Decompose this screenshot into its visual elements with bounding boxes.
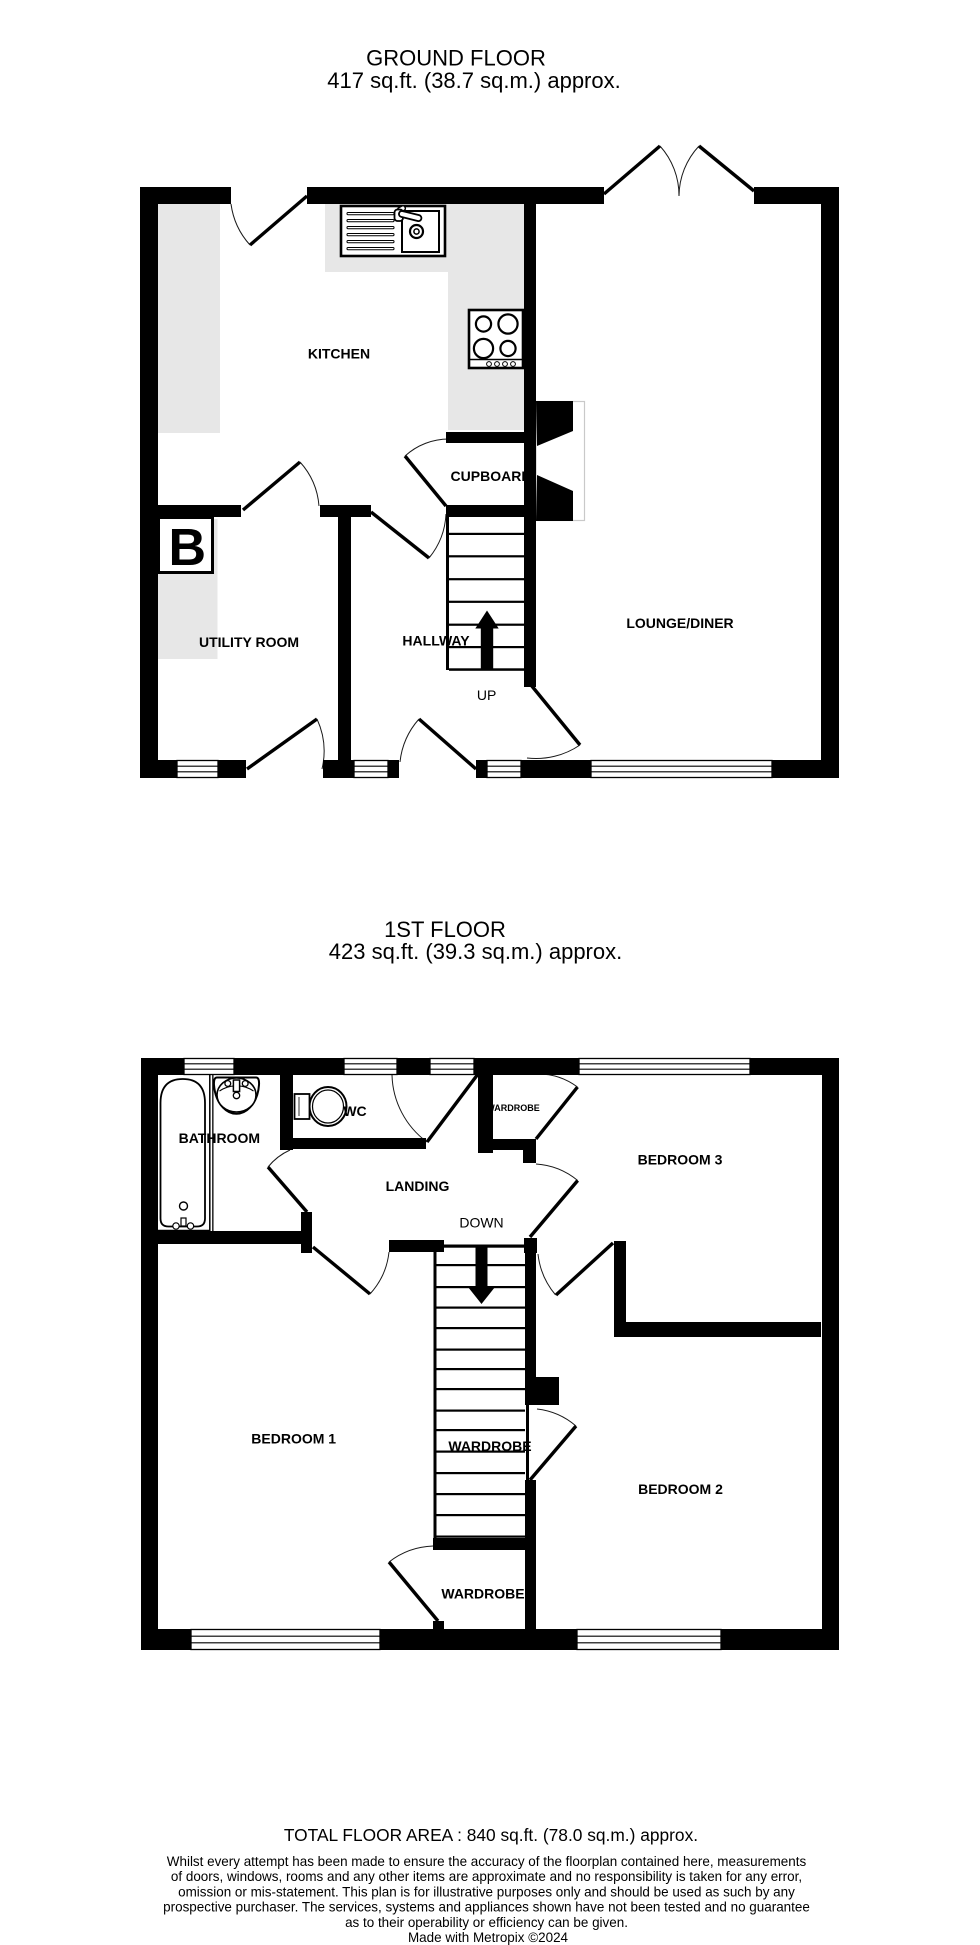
svg-text:UTILITY ROOM: UTILITY ROOM xyxy=(199,634,299,650)
svg-text:of doors, windows, rooms and a: of doors, windows, rooms and any other i… xyxy=(171,1869,802,1884)
svg-text:Made with Metropix ©2024: Made with Metropix ©2024 xyxy=(408,1930,569,1945)
svg-text:Whilst every attempt has been: Whilst every attempt has been made to en… xyxy=(167,1854,807,1869)
svg-text:as to their operability or eff: as to their operability or efficiency ca… xyxy=(345,1915,628,1930)
svg-text:LANDING: LANDING xyxy=(386,1178,450,1194)
svg-text:B: B xyxy=(169,519,207,577)
svg-text:DOWN: DOWN xyxy=(459,1215,503,1231)
svg-text:CUPBOARD: CUPBOARD xyxy=(451,468,532,484)
svg-text:BEDROOM 3: BEDROOM 3 xyxy=(638,1152,723,1168)
svg-text:KITCHEN: KITCHEN xyxy=(308,346,370,362)
svg-text:HALLWAY: HALLWAY xyxy=(402,633,470,649)
svg-text:BATHROOM: BATHROOM xyxy=(179,1130,260,1146)
svg-text:BEDROOM 1: BEDROOM 1 xyxy=(251,1431,336,1447)
svg-text:417 sq.ft. (38.7 sq.m.) approx: 417 sq.ft. (38.7 sq.m.) approx. xyxy=(327,68,620,93)
svg-text:WARDROBE: WARDROBE xyxy=(486,1103,540,1113)
svg-text:423 sq.ft. (39.3 sq.m.) approx: 423 sq.ft. (39.3 sq.m.) approx. xyxy=(329,939,622,964)
svg-text:WARDROBE: WARDROBE xyxy=(448,1438,531,1454)
svg-text:LOUNGE/DINER: LOUNGE/DINER xyxy=(626,615,733,631)
svg-text:BEDROOM 2: BEDROOM 2 xyxy=(638,1481,723,1497)
svg-text:TOTAL FLOOR AREA : 840 sq.ft.: TOTAL FLOOR AREA : 840 sq.ft. (78.0 sq.m… xyxy=(284,1825,698,1845)
svg-text:WARDROBE: WARDROBE xyxy=(441,1586,524,1602)
svg-text:GROUND FLOOR: GROUND FLOOR xyxy=(366,46,546,71)
svg-text:prospective purchaser. The ser: prospective purchaser. The services, sys… xyxy=(163,1900,810,1915)
svg-text:omission or mis-statement. Thi: omission or mis-statement. This plan is … xyxy=(178,1884,795,1899)
svg-text:UP: UP xyxy=(477,687,496,703)
svg-text:WC: WC xyxy=(343,1103,366,1119)
